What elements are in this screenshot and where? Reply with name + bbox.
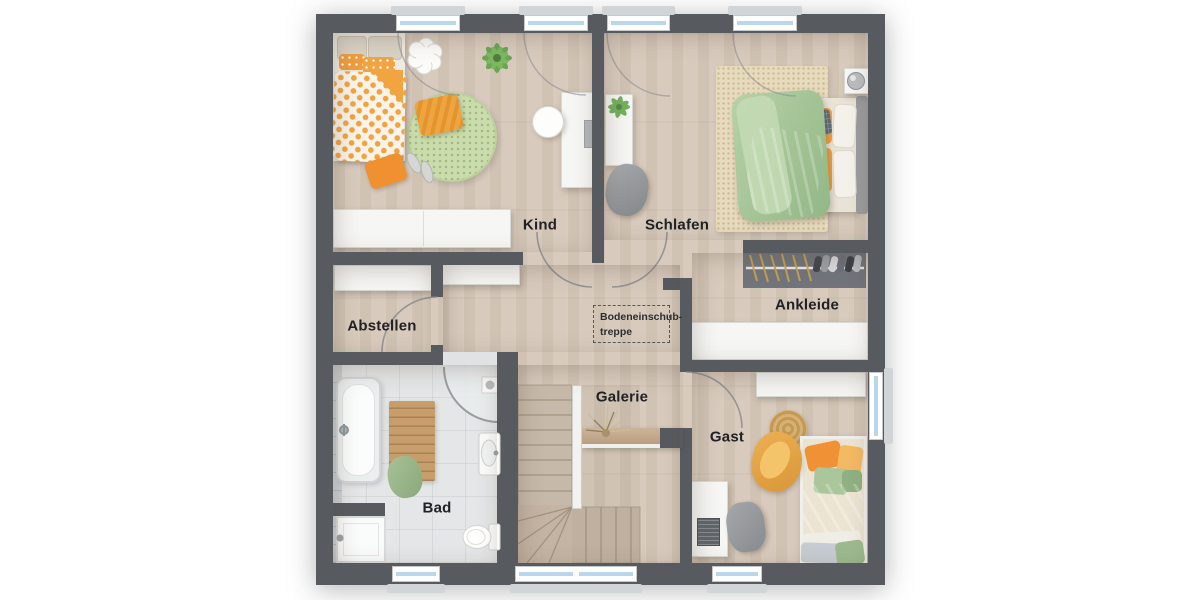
room-label-kind: Kind <box>523 217 557 234</box>
kids-flower-table <box>408 38 442 74</box>
room-label-gast: Gast <box>710 429 744 446</box>
svg-over-layer <box>0 0 1200 600</box>
slippers <box>404 151 435 184</box>
door-swing-arcs <box>382 232 742 428</box>
room-label-abstellen: Abstellen <box>347 318 416 335</box>
attic-hatch-line1: Bodeneinschub- <box>600 310 669 325</box>
room-label-bad: Bad <box>423 500 452 517</box>
room-label-schlafen: Schlafen <box>645 217 709 234</box>
attic-hatch-line2: treppe <box>600 325 669 340</box>
tub-faucet <box>340 424 348 436</box>
schlafen-door-arc <box>612 232 667 287</box>
window-swing-arcs <box>398 33 796 96</box>
attic-hatch-annotation: Bodeneinschub- treppe <box>593 305 670 343</box>
plant-schlafen <box>608 96 631 119</box>
room-label-galerie: Galerie <box>596 389 648 406</box>
room-label-ankleide: Ankleide <box>775 297 839 314</box>
floor-plan: Bodeneinschub- treppe Kind Schlafen Abst… <box>0 0 1200 600</box>
plant-kind <box>482 43 512 73</box>
nightstand-lamp-highlight <box>850 75 856 81</box>
kind-door-arc <box>537 232 592 287</box>
toilet <box>463 524 500 550</box>
gast-door-arc <box>686 372 742 428</box>
nightstand-lamp <box>848 73 865 90</box>
washbasin <box>479 433 500 475</box>
shower-faucet <box>337 535 344 542</box>
dried-plant-galerie <box>586 406 630 437</box>
